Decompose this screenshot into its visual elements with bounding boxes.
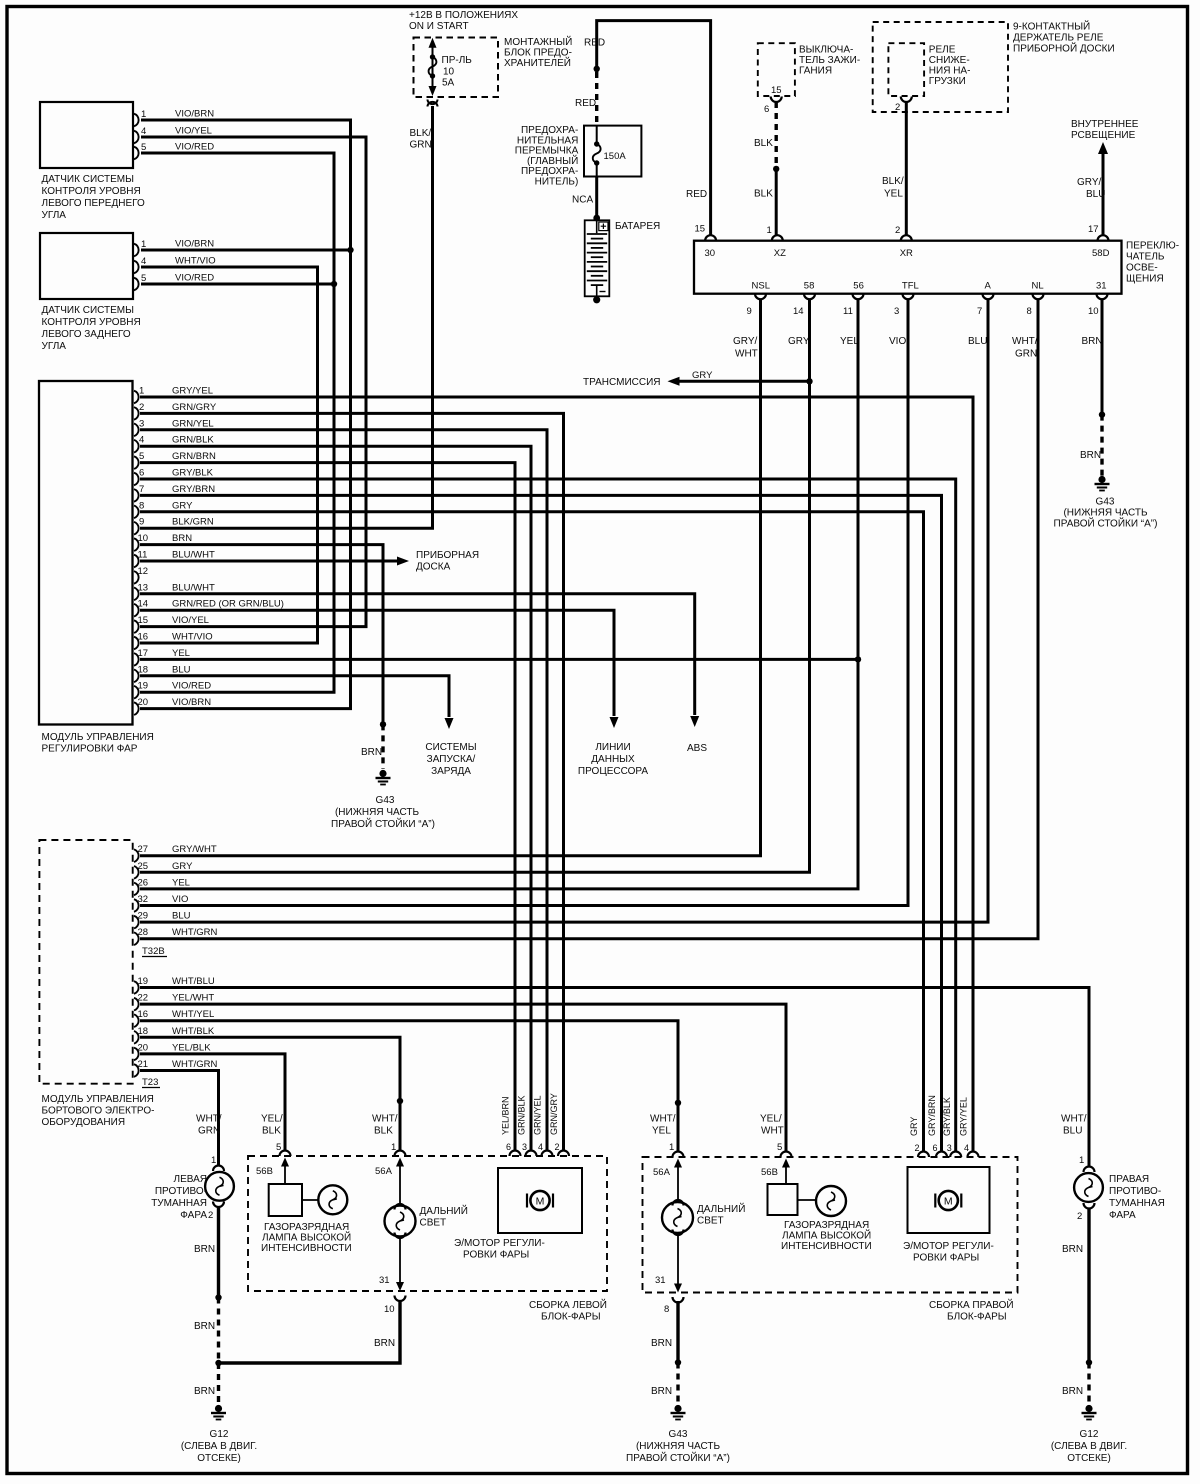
svg-text:ИНТЕНСИВНОСТИ: ИНТЕНСИВНОСТИ bbox=[781, 1241, 872, 1252]
svg-text:20: 20 bbox=[138, 697, 149, 708]
svg-text:ЗАПУСКА/: ЗАПУСКА/ bbox=[427, 754, 476, 765]
svg-text:ТРАНСМИССИЯ: ТРАНСМИССИЯ bbox=[583, 377, 660, 388]
svg-text:22: 22 bbox=[138, 993, 149, 1004]
svg-text:ОСВЕ-: ОСВЕ- bbox=[1126, 263, 1158, 274]
svg-text:ХРАНИТЕЛЕЙ: ХРАНИТЕЛЕЙ bbox=[504, 56, 571, 69]
svg-text:15: 15 bbox=[771, 85, 782, 96]
svg-text:ДАЛЬНИЙ: ДАЛЬНИЙ bbox=[697, 1202, 745, 1215]
svg-text:GRN/YEL: GRN/YEL bbox=[533, 1095, 543, 1135]
svg-text:ГАНИЯ: ГАНИЯ bbox=[799, 66, 832, 77]
svg-text:ГРУЗКИ: ГРУЗКИ bbox=[929, 76, 966, 87]
svg-text:ТЕЛЬ ЗАЖИ-: ТЕЛЬ ЗАЖИ- bbox=[799, 55, 860, 66]
svg-text:G43: G43 bbox=[376, 795, 395, 806]
svg-text:GRY/YEL: GRY/YEL bbox=[959, 1097, 969, 1136]
svg-text:M: M bbox=[944, 1196, 953, 1208]
svg-text:4: 4 bbox=[139, 435, 144, 446]
svg-text:СБОРКА ПРАВОЙ: СБОРКА ПРАВОЙ bbox=[929, 1298, 1014, 1311]
svg-text:BRN: BRN bbox=[194, 1321, 215, 1332]
svg-text:WHT/GRN: WHT/GRN bbox=[172, 1059, 218, 1070]
svg-text:ТУМАННАЯ: ТУМАННАЯ bbox=[1109, 1198, 1165, 1209]
svg-text:БОРТОВОГО ЭЛЕКТРО-: БОРТОВОГО ЭЛЕКТРО- bbox=[42, 1106, 155, 1117]
svg-text:3: 3 bbox=[894, 306, 899, 317]
svg-text:9: 9 bbox=[747, 306, 752, 317]
svg-text:БЛОК-ФАРЫ: БЛОК-ФАРЫ bbox=[541, 1312, 601, 1323]
svg-text:7: 7 bbox=[977, 306, 982, 317]
svg-text:КОНТРОЛЯ УРОВНЯ: КОНТРОЛЯ УРОВНЯ bbox=[42, 186, 141, 197]
svg-text:19: 19 bbox=[138, 976, 149, 987]
svg-text:ТУМАННАЯ: ТУМАННАЯ bbox=[151, 1198, 207, 1209]
svg-text:WHT: WHT bbox=[735, 349, 758, 360]
svg-text:VIO/BRN: VIO/BRN bbox=[175, 239, 214, 250]
svg-text:WHT/: WHT/ bbox=[1061, 1114, 1087, 1125]
svg-text:GRN/YEL: GRN/YEL bbox=[172, 418, 214, 429]
svg-text:РЕЛЕ: РЕЛЕ bbox=[929, 45, 956, 56]
svg-text:2: 2 bbox=[1077, 1211, 1082, 1222]
svg-text:9: 9 bbox=[139, 517, 144, 528]
svg-text:1: 1 bbox=[669, 1142, 674, 1153]
svg-text:МОДУЛЬ УПРАВЛЕНИЯ: МОДУЛЬ УПРАВЛЕНИЯ bbox=[42, 732, 154, 743]
svg-text:WHT/: WHT/ bbox=[650, 1114, 676, 1125]
svg-text:VIO/YEL: VIO/YEL bbox=[175, 126, 212, 137]
svg-text:11: 11 bbox=[843, 306, 853, 317]
svg-text:1: 1 bbox=[767, 225, 772, 236]
svg-text:ДЕРЖАТЕЛЬ РЕЛЕ: ДЕРЖАТЕЛЬ РЕЛЕ bbox=[1013, 33, 1104, 44]
svg-text:ОБОРУДОВАНИЯ: ОБОРУДОВАНИЯ bbox=[42, 1117, 126, 1128]
svg-text:10: 10 bbox=[443, 67, 455, 78]
svg-text:ЗАРЯДА: ЗАРЯДА bbox=[431, 766, 471, 777]
svg-text:18: 18 bbox=[138, 664, 149, 675]
svg-text:GRN/GRY: GRN/GRY bbox=[549, 1093, 559, 1135]
svg-text:ФАРА: ФАРА bbox=[1109, 1210, 1136, 1221]
svg-text:ПРАВАЯ: ПРАВАЯ bbox=[1109, 1174, 1149, 1185]
svg-text:УГЛА: УГЛА bbox=[42, 341, 67, 352]
svg-text:СВЕТ: СВЕТ bbox=[420, 1218, 447, 1229]
svg-text:Э/МОТОР РЕГУЛИ-: Э/МОТОР РЕГУЛИ- bbox=[903, 1241, 994, 1252]
svg-text:РСВЕЩЕНИЕ: РСВЕЩЕНИЕ bbox=[1071, 130, 1136, 141]
svg-text:КОНТРОЛЯ УРОВНЯ: КОНТРОЛЯ УРОВНЯ bbox=[42, 317, 141, 328]
svg-text:M: M bbox=[536, 1196, 545, 1208]
svg-text:WHT/VIO: WHT/VIO bbox=[175, 256, 216, 267]
svg-text:RED: RED bbox=[686, 189, 707, 200]
svg-text:VIO/RED: VIO/RED bbox=[175, 142, 214, 153]
svg-text:СИСТЕМЫ: СИСТЕМЫ bbox=[425, 742, 476, 753]
svg-text:YEL: YEL bbox=[172, 877, 190, 888]
svg-text:ВНУТРЕННЕЕ: ВНУТРЕННЕЕ bbox=[1071, 119, 1139, 130]
svg-text:ДАТЧИК СИСТЕМЫ: ДАТЧИК СИСТЕМЫ bbox=[42, 174, 135, 185]
svg-text:5: 5 bbox=[141, 273, 146, 284]
svg-text:WHT/BLU: WHT/BLU bbox=[172, 976, 215, 987]
svg-text:RED: RED bbox=[584, 38, 605, 49]
svg-text:ДОСКА: ДОСКА bbox=[416, 562, 451, 573]
svg-text:BLU: BLU bbox=[172, 911, 191, 922]
svg-text:BLK/: BLK/ bbox=[882, 176, 904, 187]
svg-text:NCA: NCA bbox=[572, 195, 593, 206]
svg-text:НИЯ НА-: НИЯ НА- bbox=[929, 66, 971, 77]
svg-text:ПР-ЛЬ: ПР-ЛЬ bbox=[442, 55, 473, 66]
svg-text:6: 6 bbox=[506, 1142, 511, 1152]
svg-text:YEL: YEL bbox=[840, 336, 859, 347]
svg-text:150А: 150А bbox=[604, 151, 627, 162]
svg-text:2: 2 bbox=[895, 225, 900, 236]
svg-text:21: 21 bbox=[138, 1059, 149, 1070]
svg-text:T32B: T32B bbox=[142, 946, 165, 957]
svg-text:17: 17 bbox=[138, 648, 149, 659]
svg-text:BRN: BRN bbox=[194, 1386, 215, 1397]
svg-text:8: 8 bbox=[1027, 306, 1032, 317]
svg-text:6: 6 bbox=[764, 104, 769, 115]
svg-text:10: 10 bbox=[1088, 306, 1099, 317]
svg-text:НИТЕЛЬ): НИТЕЛЬ) bbox=[535, 177, 579, 188]
svg-text:GRY/BRN: GRY/BRN bbox=[927, 1095, 937, 1136]
svg-text:58: 58 bbox=[804, 281, 815, 292]
svg-text:ГАЗОРАЗРЯДНАЯ: ГАЗОРАЗРЯДНАЯ bbox=[784, 1220, 869, 1231]
svg-text:ЛАМПА ВЫСОКОЙ: ЛАМПА ВЫСОКОЙ bbox=[782, 1229, 871, 1242]
svg-text:31: 31 bbox=[655, 1275, 666, 1286]
svg-text:1: 1 bbox=[1079, 1155, 1084, 1166]
svg-text:15: 15 bbox=[695, 224, 706, 235]
svg-text:РОВКИ ФАРЫ: РОВКИ ФАРЫ bbox=[913, 1253, 979, 1264]
svg-text:25: 25 bbox=[138, 861, 149, 872]
svg-text:GRY/: GRY/ bbox=[1077, 177, 1101, 188]
svg-text:МОНТАЖНЫЙ: МОНТАЖНЫЙ bbox=[504, 35, 572, 48]
svg-text:ЩЕНИЯ: ЩЕНИЯ bbox=[1126, 274, 1164, 285]
svg-text:GRY: GRY bbox=[788, 336, 810, 347]
svg-text:16: 16 bbox=[138, 1009, 149, 1020]
svg-text:VIO/RED: VIO/RED bbox=[172, 681, 211, 692]
svg-text:2: 2 bbox=[895, 102, 900, 113]
svg-text:WHT/VIO: WHT/VIO bbox=[172, 632, 213, 643]
svg-text:ON И START: ON И START bbox=[409, 21, 469, 32]
svg-text:(НИЖНЯЯ ЧАСТЬ: (НИЖНЯЯ ЧАСТЬ bbox=[636, 1441, 721, 1452]
svg-text:GRY/BLK: GRY/BLK bbox=[942, 1097, 952, 1136]
svg-text:ABS: ABS bbox=[687, 743, 707, 754]
svg-text:СВЕТ: СВЕТ bbox=[697, 1216, 724, 1227]
svg-text:YEL/BLK: YEL/BLK bbox=[172, 1042, 211, 1053]
svg-text:GRN: GRN bbox=[1015, 349, 1037, 360]
svg-text:4: 4 bbox=[964, 1143, 969, 1153]
svg-text:Э/МОТОР РЕГУЛИ-: Э/МОТОР РЕГУЛИ- bbox=[454, 1238, 545, 1249]
svg-text:G12: G12 bbox=[210, 1429, 229, 1440]
svg-text:РЕГУЛИРОВКИ ФАР: РЕГУЛИРОВКИ ФАР bbox=[42, 744, 138, 755]
svg-text:2: 2 bbox=[555, 1142, 560, 1152]
svg-text:1: 1 bbox=[141, 109, 146, 120]
svg-text:56B: 56B bbox=[761, 1167, 778, 1178]
svg-text:BRN: BRN bbox=[374, 1338, 395, 1349]
svg-text:ПРОТИВО-: ПРОТИВО- bbox=[1109, 1186, 1161, 1197]
svg-text:VIO: VIO bbox=[172, 894, 188, 905]
svg-text:GRN/BRN: GRN/BRN bbox=[172, 451, 216, 462]
svg-text:26: 26 bbox=[138, 877, 149, 888]
svg-text:BLK: BLK bbox=[754, 189, 773, 200]
svg-text:BLK: BLK bbox=[262, 1126, 281, 1137]
svg-text:ПРОТИВО-: ПРОТИВО- bbox=[155, 1186, 207, 1197]
svg-text:GRN/RED (OR GRN/BLU): GRN/RED (OR GRN/BLU) bbox=[172, 599, 284, 610]
svg-text:BLU: BLU bbox=[1063, 1126, 1082, 1137]
svg-text:BLU/WHT: BLU/WHT bbox=[172, 550, 215, 561]
svg-text:12: 12 bbox=[138, 566, 149, 577]
svg-text:ПРОЦЕССОРА: ПРОЦЕССОРА bbox=[578, 766, 648, 777]
svg-text:(СЛЕВА В ДВИГ.: (СЛЕВА В ДВИГ. bbox=[1051, 1441, 1127, 1452]
svg-text:GRY/BRN: GRY/BRN bbox=[172, 484, 215, 495]
svg-text:ЛЕВОГО ПЕРЕДНЕГО: ЛЕВОГО ПЕРЕДНЕГО bbox=[42, 198, 145, 209]
svg-text:ЛЕВОГО ЗАДНЕГО: ЛЕВОГО ЗАДНЕГО bbox=[42, 329, 131, 340]
svg-text:16: 16 bbox=[138, 632, 149, 643]
svg-text:20: 20 bbox=[138, 1042, 149, 1053]
svg-text:NSL: NSL bbox=[752, 281, 770, 292]
svg-text:(НИЖНЯЯ ЧАСТЬ: (НИЖНЯЯ ЧАСТЬ bbox=[335, 807, 420, 818]
svg-text:1: 1 bbox=[211, 1155, 216, 1166]
svg-text:BLU/WHT: BLU/WHT bbox=[172, 582, 215, 593]
svg-text:+12В В ПОЛОЖЕНИЯХ: +12В В ПОЛОЖЕНИЯХ bbox=[409, 10, 518, 21]
svg-text:YEL: YEL bbox=[652, 1126, 671, 1137]
svg-text:4: 4 bbox=[141, 256, 146, 267]
svg-text:A: A bbox=[985, 281, 992, 292]
svg-text:GRN/BLK: GRN/BLK bbox=[517, 1095, 527, 1135]
svg-text:ВЫКЛЮЧА-: ВЫКЛЮЧА- bbox=[799, 45, 853, 56]
svg-text:ПРАВОЙ СТОЙКИ “А”): ПРАВОЙ СТОЙКИ “А”) bbox=[331, 817, 435, 830]
svg-text:1: 1 bbox=[139, 386, 144, 397]
svg-text:30: 30 bbox=[705, 248, 716, 259]
svg-text:58D: 58D bbox=[1092, 248, 1110, 259]
svg-text:5: 5 bbox=[777, 1142, 782, 1153]
svg-text:BRN: BRN bbox=[1082, 336, 1103, 347]
svg-text:56: 56 bbox=[853, 281, 864, 292]
svg-text:YEL: YEL bbox=[172, 648, 190, 659]
svg-text:4: 4 bbox=[141, 126, 146, 137]
svg-text:WHT/: WHT/ bbox=[1012, 336, 1038, 347]
svg-text:6: 6 bbox=[139, 468, 144, 479]
svg-text:WHT: WHT bbox=[761, 1126, 784, 1137]
svg-text:9-КОНТАКТНЫЙ: 9-КОНТАКТНЫЙ bbox=[1013, 20, 1090, 33]
svg-text:29: 29 bbox=[138, 911, 149, 922]
svg-text:БЛОК ПРЕДО-: БЛОК ПРЕДО- bbox=[504, 48, 572, 59]
svg-text:10: 10 bbox=[138, 533, 149, 544]
svg-text:BLU: BLU bbox=[968, 336, 987, 347]
svg-text:GRY/: GRY/ bbox=[733, 336, 757, 347]
svg-text:ЛАМПА ВЫСОКОЙ: ЛАМПА ВЫСОКОЙ bbox=[262, 1231, 351, 1244]
svg-text:BLK/GRN: BLK/GRN bbox=[172, 517, 214, 528]
svg-text:2: 2 bbox=[208, 1210, 213, 1221]
svg-text:BRN: BRN bbox=[361, 747, 382, 758]
svg-text:ЛИНИИ: ЛИНИИ bbox=[595, 742, 630, 753]
svg-text:WHT/GRN: WHT/GRN bbox=[172, 927, 218, 938]
svg-text:VIO/BRN: VIO/BRN bbox=[175, 109, 214, 120]
svg-text:BRN: BRN bbox=[651, 1386, 672, 1397]
svg-text:BRN: BRN bbox=[172, 533, 192, 544]
svg-text:56A: 56A bbox=[653, 1167, 671, 1178]
svg-text:GRY: GRY bbox=[909, 1117, 919, 1136]
svg-text:31: 31 bbox=[1096, 281, 1107, 292]
svg-text:8: 8 bbox=[664, 1304, 669, 1315]
svg-text:56A: 56A bbox=[375, 1166, 393, 1177]
svg-text:ОТСЕКЕ): ОТСЕКЕ) bbox=[1067, 1453, 1111, 1464]
svg-text:8: 8 bbox=[139, 500, 144, 511]
svg-text:BLU: BLU bbox=[1086, 189, 1105, 200]
svg-text:МОДУЛЬ УПРАВЛЕНИЯ: МОДУЛЬ УПРАВЛЕНИЯ bbox=[42, 1094, 154, 1105]
svg-text:5: 5 bbox=[141, 142, 146, 153]
svg-text:VIO: VIO bbox=[889, 336, 906, 347]
svg-text:YEL/: YEL/ bbox=[760, 1114, 782, 1125]
svg-text:(ГЛАВНЫЙ: (ГЛАВНЫЙ bbox=[527, 154, 578, 167]
svg-text:GRY/WHT: GRY/WHT bbox=[172, 844, 217, 855]
svg-text:VIO/YEL: VIO/YEL bbox=[172, 615, 209, 626]
svg-text:31: 31 bbox=[379, 1275, 390, 1286]
svg-text:TFL: TFL bbox=[902, 281, 919, 292]
svg-text:VIO/RED: VIO/RED bbox=[175, 273, 214, 284]
svg-text:BRN: BRN bbox=[651, 1338, 672, 1349]
svg-text:BRN: BRN bbox=[1062, 1244, 1083, 1255]
svg-text:G43: G43 bbox=[1096, 497, 1115, 508]
svg-text:13: 13 bbox=[138, 582, 149, 593]
svg-text:БАТАРЕЯ: БАТАРЕЯ bbox=[615, 221, 660, 232]
svg-text:3: 3 bbox=[522, 1142, 527, 1152]
svg-text:3: 3 bbox=[139, 418, 144, 429]
svg-text:WHT/BLK: WHT/BLK bbox=[172, 1026, 215, 1037]
svg-text:BRN: BRN bbox=[1080, 450, 1101, 461]
svg-text:14: 14 bbox=[138, 599, 149, 610]
svg-text:GRN: GRN bbox=[410, 140, 432, 151]
svg-text:5А: 5А bbox=[442, 78, 455, 89]
svg-text:BLK: BLK bbox=[754, 138, 773, 149]
svg-text:РОВКИ ФАРЫ: РОВКИ ФАРЫ bbox=[463, 1250, 529, 1261]
svg-text:ФАРА: ФАРА bbox=[180, 1210, 207, 1221]
svg-text:YEL/: YEL/ bbox=[261, 1114, 283, 1125]
svg-text:1: 1 bbox=[141, 239, 146, 250]
svg-text:VIO/BRN: VIO/BRN bbox=[172, 697, 211, 708]
svg-text:4: 4 bbox=[538, 1142, 543, 1152]
svg-text:WHT/YEL: WHT/YEL bbox=[172, 1009, 214, 1020]
svg-text:GRY: GRY bbox=[692, 370, 713, 381]
svg-text:5: 5 bbox=[139, 451, 144, 462]
svg-text:YEL: YEL bbox=[884, 189, 903, 200]
svg-text:ГАЗОРАЗРЯДНАЯ: ГАЗОРАЗРЯДНАЯ bbox=[264, 1222, 349, 1233]
svg-text:17: 17 bbox=[1088, 224, 1099, 235]
svg-text:G43: G43 bbox=[669, 1429, 688, 1440]
svg-text:BLK/: BLK/ bbox=[410, 128, 432, 139]
svg-text:BRN: BRN bbox=[1062, 1386, 1083, 1397]
svg-text:10: 10 bbox=[384, 1304, 395, 1315]
svg-text:ИНТЕНСИВНОСТИ: ИНТЕНСИВНОСТИ bbox=[261, 1243, 352, 1254]
svg-text:RED: RED bbox=[575, 98, 596, 109]
svg-text:ПРАВОЙ СТОЙКИ “А”): ПРАВОЙ СТОЙКИ “А”) bbox=[1054, 517, 1158, 530]
svg-text:32: 32 bbox=[138, 894, 149, 905]
svg-text:19: 19 bbox=[138, 681, 149, 692]
svg-text:СБОРКА ЛЕВОЙ: СБОРКА ЛЕВОЙ bbox=[529, 1298, 607, 1311]
svg-text:BRN: BRN bbox=[194, 1244, 215, 1255]
svg-text:(НИЖНЯЯ ЧАСТЬ: (НИЖНЯЯ ЧАСТЬ bbox=[1063, 508, 1148, 519]
svg-text:ПРАВОЙ СТОЙКИ “А”): ПРАВОЙ СТОЙКИ “А”) bbox=[626, 1451, 730, 1464]
svg-text:GRY: GRY bbox=[172, 861, 193, 872]
svg-text:ДАННЫХ: ДАННЫХ bbox=[591, 754, 635, 765]
svg-text:ЧАТЕЛЬ: ЧАТЕЛЬ bbox=[1126, 252, 1165, 263]
svg-text:BLK: BLK bbox=[374, 1126, 393, 1137]
svg-text:WHT/: WHT/ bbox=[372, 1114, 398, 1125]
svg-text:XZ: XZ bbox=[774, 248, 786, 259]
svg-text:15: 15 bbox=[138, 615, 149, 626]
svg-text:GRY/YEL: GRY/YEL bbox=[172, 386, 213, 397]
svg-text:6: 6 bbox=[933, 1143, 938, 1153]
svg-text:11: 11 bbox=[138, 550, 148, 561]
svg-text:GRN: GRN bbox=[198, 1126, 220, 1137]
svg-text:NL: NL bbox=[1032, 281, 1044, 292]
svg-text:XR: XR bbox=[900, 248, 913, 259]
svg-text:28: 28 bbox=[138, 927, 149, 938]
svg-text:GRY/BLK: GRY/BLK bbox=[172, 468, 214, 479]
svg-text:BLU: BLU bbox=[172, 664, 191, 675]
svg-text:ПРИБОРНАЯ: ПРИБОРНАЯ bbox=[416, 550, 479, 561]
svg-text:БЛОК-ФАРЫ: БЛОК-ФАРЫ bbox=[947, 1312, 1007, 1323]
svg-text:(СЛЕВА В ДВИГ.: (СЛЕВА В ДВИГ. bbox=[181, 1441, 257, 1452]
svg-text:27: 27 bbox=[138, 844, 149, 855]
svg-text:ДАЛЬНИЙ: ДАЛЬНИЙ bbox=[420, 1204, 468, 1217]
svg-text:18: 18 bbox=[138, 1026, 149, 1037]
svg-text:2: 2 bbox=[139, 402, 144, 413]
svg-text:ОТСЕКЕ): ОТСЕКЕ) bbox=[197, 1453, 241, 1464]
svg-text:YEL/WHT: YEL/WHT bbox=[172, 993, 214, 1004]
svg-text:56B: 56B bbox=[256, 1166, 273, 1177]
svg-text:GRN/BLK: GRN/BLK bbox=[172, 435, 214, 446]
svg-text:T23: T23 bbox=[142, 1077, 158, 1088]
svg-text:YEL/BRN: YEL/BRN bbox=[501, 1096, 511, 1135]
svg-text:GRN/GRY: GRN/GRY bbox=[172, 402, 217, 413]
svg-text:14: 14 bbox=[793, 306, 804, 317]
svg-text:ДАТЧИК СИСТЕМЫ: ДАТЧИК СИСТЕМЫ bbox=[42, 305, 135, 316]
svg-text:УГЛА: УГЛА bbox=[42, 210, 67, 221]
svg-text:G12: G12 bbox=[1080, 1429, 1099, 1440]
svg-text:7: 7 bbox=[139, 484, 144, 495]
svg-text:3: 3 bbox=[947, 1143, 952, 1153]
svg-text:ПЕРЕКЛЮ-: ПЕРЕКЛЮ- bbox=[1126, 241, 1179, 252]
svg-text:WHT/: WHT/ bbox=[196, 1114, 222, 1125]
svg-text:2: 2 bbox=[915, 1143, 920, 1153]
svg-text:ЛЕВАЯ: ЛЕВАЯ bbox=[174, 1174, 207, 1185]
svg-text:ПРИБОРНОЙ ДОСКИ: ПРИБОРНОЙ ДОСКИ bbox=[1013, 42, 1115, 55]
svg-text:СНИЖЕ-: СНИЖЕ- bbox=[929, 55, 970, 66]
svg-text:GRY: GRY bbox=[172, 500, 193, 511]
